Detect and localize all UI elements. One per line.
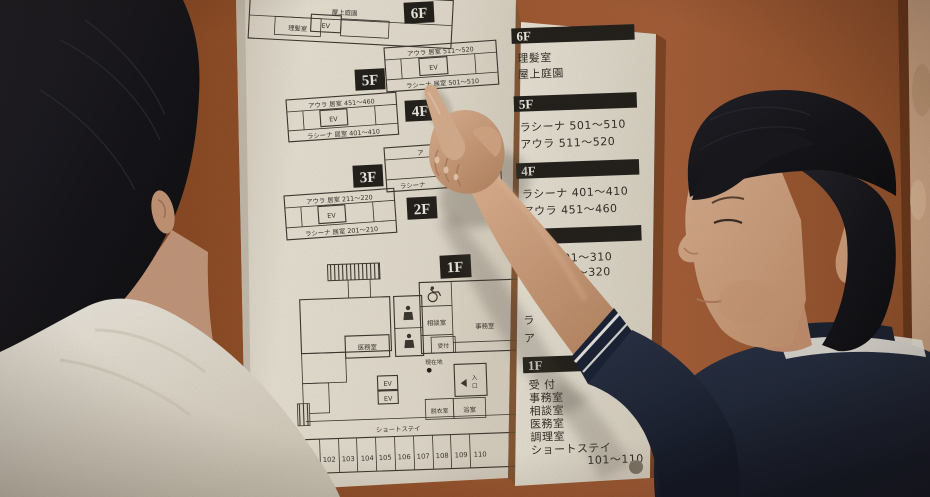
photo-vignette: [0, 0, 930, 497]
scene-canvas: 屋上庭園 理髪室 EV アウラ 居室 511〜520 EV ラシーナ 居室 50…: [0, 0, 930, 497]
photo-scene: 屋上庭園 理髪室 EV アウラ 居室 511〜520 EV ラシーナ 居室 50…: [0, 0, 930, 497]
